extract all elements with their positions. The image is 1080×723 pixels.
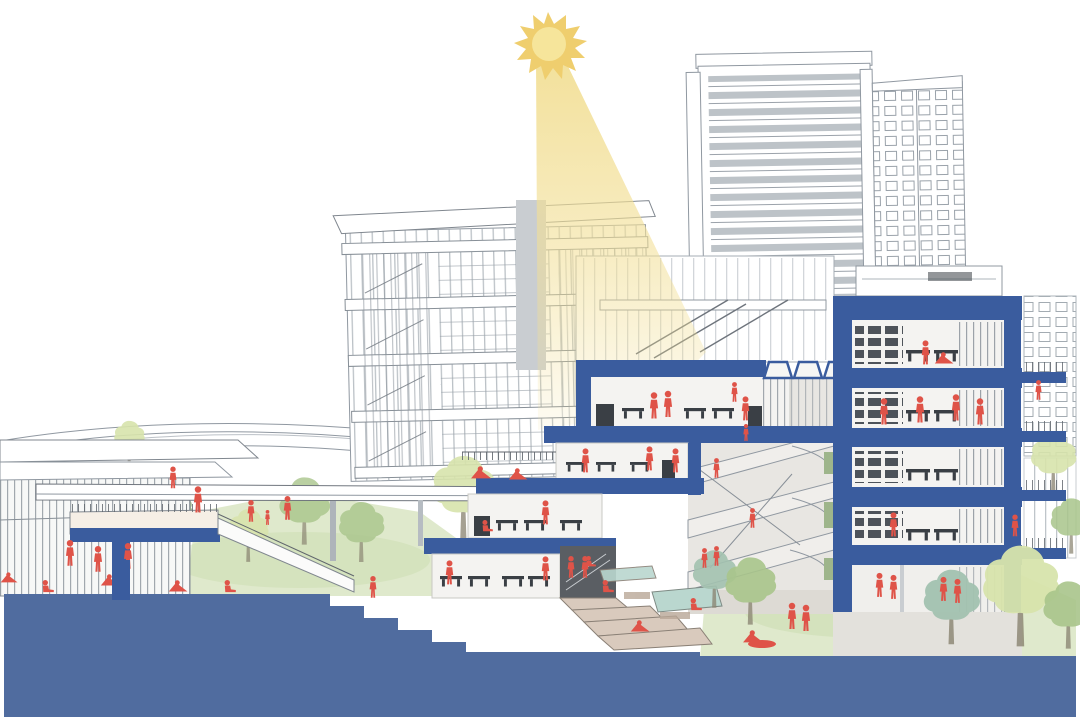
floor-4 [432,546,616,598]
terrace-pier [112,560,130,600]
architectural-rendering: Sectional perspective architectural rend… [0,0,1080,723]
section-perspective-svg: Sectional perspective architectural rend… [0,0,1080,723]
sun-icon [514,12,587,80]
